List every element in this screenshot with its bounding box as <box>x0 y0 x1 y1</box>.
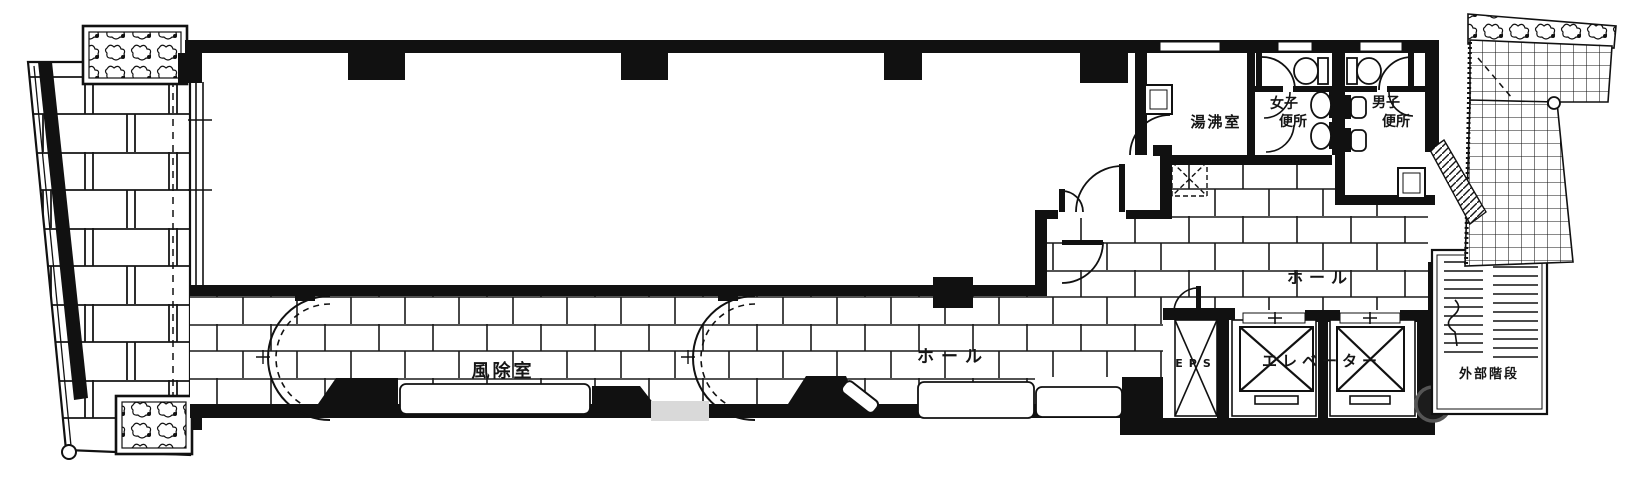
storefront-window <box>918 382 1034 418</box>
label-vestibule: 風除室 <box>472 360 535 382</box>
south-wall-elevator <box>1120 418 1435 435</box>
planter-top-left <box>83 26 187 84</box>
toilet-fixture <box>1347 58 1381 84</box>
upper-hall-floor <box>1047 218 1428 310</box>
column <box>933 277 973 308</box>
lobby-divider-wall <box>1160 155 1172 212</box>
east-wall <box>1425 40 1439 152</box>
open-room-west-glazing <box>188 82 212 285</box>
external-stair <box>1432 250 1547 414</box>
step-wall <box>1035 210 1047 296</box>
womens-south-wall <box>1253 155 1332 165</box>
label-mens-toilet-line2: 便所 <box>1382 113 1410 130</box>
cab-indicator <box>1255 396 1298 404</box>
kitchen-sink-basin <box>1150 90 1167 109</box>
door-leaf <box>1153 145 1172 156</box>
window-slot <box>1360 42 1402 51</box>
south-wall-pier <box>1122 377 1163 418</box>
toilet-fixture <box>1294 58 1328 84</box>
window-slot <box>1160 42 1220 51</box>
door-swing-arc <box>1262 57 1295 90</box>
column <box>621 53 668 80</box>
wash-basin <box>1311 92 1335 149</box>
kitchenette-east-wall <box>1247 53 1255 155</box>
toilet-divider-ext <box>1335 155 1345 205</box>
column <box>884 53 922 80</box>
hall-east-strip <box>1345 205 1428 218</box>
stall-partition <box>1293 86 1332 92</box>
door-leaf <box>1256 53 1262 90</box>
corner-column <box>178 53 202 83</box>
stall-partition <box>1345 86 1377 92</box>
cab-indicator <box>1350 396 1390 404</box>
planting-texture <box>89 32 181 78</box>
label-womens-toilet-line2: 便所 <box>1279 113 1307 130</box>
planter-bottom-left <box>116 396 192 454</box>
column <box>348 53 405 80</box>
storefront-window <box>1036 387 1122 417</box>
corridor-north-wall <box>190 285 1035 296</box>
toilet-lobby-floor <box>1172 165 1345 218</box>
door-leaf <box>718 286 738 301</box>
north-wall-window-slots <box>1160 42 1402 51</box>
hall-top-wall <box>1037 210 1058 219</box>
post-circle <box>1548 97 1560 109</box>
kitchenette-south-wall <box>1170 155 1253 165</box>
entrance-pad <box>651 401 709 421</box>
wash-basin <box>1398 168 1425 198</box>
door-leaf <box>1196 286 1201 310</box>
urinal <box>1345 95 1366 152</box>
label-kitchenette: 湯沸室 <box>1190 113 1241 131</box>
storefront-window <box>400 384 590 414</box>
label-eps: EPS <box>1175 357 1217 370</box>
door-leaf <box>1408 53 1414 90</box>
door-leaf <box>1062 240 1103 245</box>
door-leaf <box>295 286 315 301</box>
tiled-terrace-lower <box>1465 100 1573 266</box>
label-mens-toilet-line1: 男子 <box>1372 95 1400 111</box>
floor-plan-page: 風除室 ホール ホール 湯沸室 女子 便所 男子 便所 EPS エレベーター 外… <box>0 0 1639 480</box>
door-swing-arc <box>1076 166 1122 212</box>
door-leaf <box>1119 164 1125 212</box>
floor-plan-canvas: 風除室 ホール ホール 湯沸室 女子 便所 男子 便所 EPS エレベーター 外… <box>0 0 1639 480</box>
label-elevator: エレベーター <box>1262 352 1382 370</box>
door-leaf <box>1059 189 1065 212</box>
label-external-stairs: 外部階段 <box>1458 366 1519 382</box>
corner-post-circle <box>62 445 76 459</box>
label-womens-toilet-line1: 女子 <box>1270 95 1298 112</box>
planting-texture <box>122 402 186 448</box>
label-hall-upper: ホール <box>1287 268 1353 287</box>
exterior-right-walkway <box>1430 14 1616 266</box>
label-hall-lower: ホール <box>917 347 989 367</box>
door-swing-arc <box>1379 57 1412 90</box>
tiled-terrace-upper <box>1470 40 1612 102</box>
north-wall <box>185 40 1437 53</box>
eps-east-wall <box>1217 320 1229 418</box>
window-slot <box>1278 42 1312 51</box>
column <box>1080 53 1128 83</box>
